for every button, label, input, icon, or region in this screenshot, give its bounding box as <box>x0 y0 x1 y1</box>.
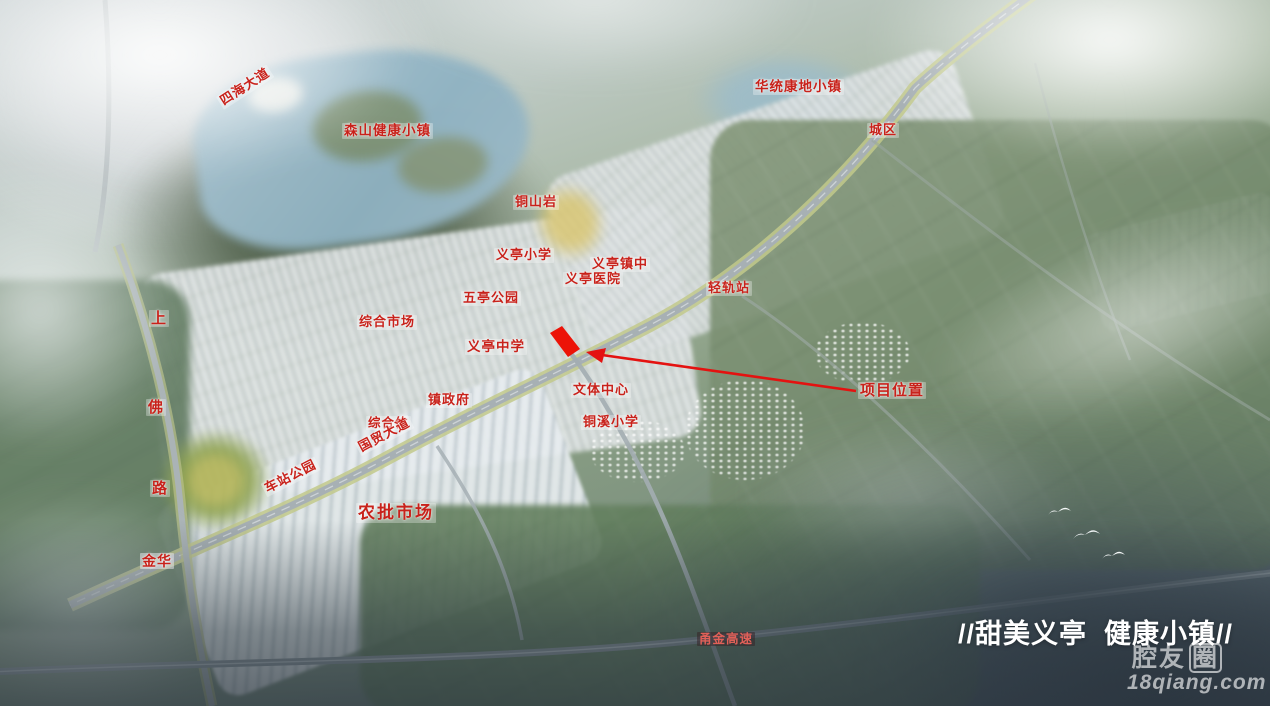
label-light-rail-station: 轻轨站 <box>706 281 752 296</box>
watermark-name: 腔友 <box>1132 644 1186 672</box>
masterplan-aerial-map: 四海大道 森山健康小镇 华统康地小镇 城区 铜山岩 义亭小学 义亭镇中 义亭医院… <box>0 0 1270 706</box>
label-chengqu: 城区 <box>867 123 899 138</box>
label-shangfo-road-char: 上 <box>149 310 169 327</box>
label-nongpi-market: 农批市场 <box>356 503 436 523</box>
label-culture-sports-center: 文体中心 <box>571 383 631 398</box>
label-yongjin-expressway: 甬金高速 <box>697 632 755 646</box>
watermark-boxed-char: 圈 <box>1189 643 1222 673</box>
label-shangfo-road-char: 佛 <box>146 399 166 416</box>
label-yiting-middle-school: 义亭中学 <box>465 339 527 355</box>
label-senshan-town: 森山健康小镇 <box>342 123 433 139</box>
bird-icon <box>1048 508 1071 515</box>
label-jinhua: 金华 <box>140 553 174 569</box>
label-yiting-primary-school: 义亭小学 <box>494 248 554 263</box>
label-town-government: 镇政府 <box>426 393 472 408</box>
label-project-location: 项目位置 <box>858 382 926 399</box>
label-huatong-town: 华统康地小镇 <box>753 79 844 95</box>
label-zonghe-market: 综合市场 <box>357 315 417 330</box>
bird-icon <box>1073 530 1100 539</box>
label-yiting-town-middle-school: 义亭镇中 <box>590 257 650 272</box>
watermark-url: 18qiang.com <box>1127 671 1266 695</box>
project-site-marker <box>550 326 580 357</box>
watermark-logo: 腔友圈 <box>1132 638 1222 674</box>
label-tongshanyan: 铜山岩 <box>513 195 559 210</box>
label-tongxi-primary-school: 铜溪小学 <box>581 415 641 430</box>
label-shangfo-road-char: 路 <box>150 480 170 497</box>
label-yiting-hospital: 义亭医院 <box>563 272 623 287</box>
annotation-overlay <box>0 0 1270 706</box>
label-wuting-park: 五亭公园 <box>461 291 521 306</box>
bird-icon <box>1102 552 1125 559</box>
